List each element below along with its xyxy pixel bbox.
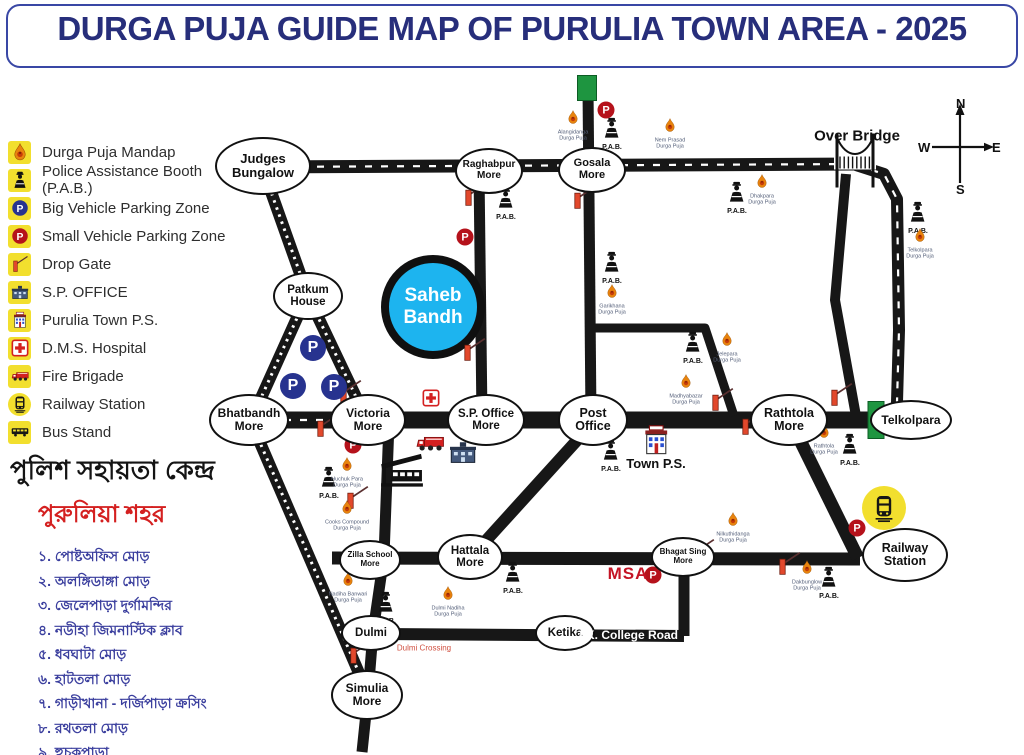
mandap-label-line2: Durga Puja xyxy=(324,483,370,489)
pab-label: P.A.B. xyxy=(503,588,523,595)
drop-gate-icon xyxy=(828,382,854,413)
place-oval-bhatbandh-more: BhatbandhMore xyxy=(209,394,289,446)
mandap-marker: MadhyabazarDurga Puja xyxy=(663,374,709,407)
place-label-line: Office xyxy=(575,420,610,434)
bus-stand-structure-icon xyxy=(379,451,425,489)
mandap-marker: AlangidangaDurga Puja xyxy=(550,110,596,143)
place-label-line: Hattala xyxy=(451,545,489,557)
mandap-icon xyxy=(756,174,768,194)
compass-east: E xyxy=(992,140,1001,155)
mandap-flame-glyph xyxy=(914,228,926,243)
place-oval-patkum-house: PatkumHouse xyxy=(273,272,343,320)
compass-rose: N S E W xyxy=(922,100,998,195)
mandap-icon xyxy=(680,374,692,394)
place-oval-hattala-more: HattalaMore xyxy=(437,534,503,580)
train-glyph xyxy=(872,493,896,523)
mandap-marker: DhakparaDurga Puja xyxy=(739,174,785,207)
place-label-line: More xyxy=(579,170,605,182)
pab-label: P.A.B. xyxy=(683,358,703,365)
saheb-bandh-label-line2: Bandh xyxy=(403,307,462,329)
compass-south: S xyxy=(956,182,965,197)
mandap-marker: GarikhanaDurga Puja xyxy=(589,284,635,317)
mandap-icon xyxy=(606,284,618,304)
mandap-icon xyxy=(664,118,676,138)
mandap-icon xyxy=(567,110,579,130)
place-label-line: More xyxy=(456,557,483,569)
mandap-marker: Dulmi NadihaDurga Puja xyxy=(425,586,471,619)
place-oval-telkolpara: Telkolpara xyxy=(870,400,952,440)
mandap-icon xyxy=(801,560,813,580)
mandap-icon xyxy=(721,332,733,352)
mandap-label-line2: Durga Puja xyxy=(550,136,596,142)
place-oval-rathtola-more: RathtolaMore xyxy=(750,394,828,446)
police-icon xyxy=(377,591,396,618)
road xyxy=(835,174,856,416)
mandap-label-line2: Durga Puja xyxy=(324,526,370,532)
compass-west: W xyxy=(918,140,930,155)
mandap-icon xyxy=(727,512,739,532)
mandap-marker: JeleparaDurga Puja xyxy=(704,332,750,365)
drop-gate-glyph xyxy=(461,337,487,363)
pab-label: P.A.B. xyxy=(601,466,621,473)
fire-truck-icon xyxy=(415,434,445,452)
police-figure-glyph xyxy=(603,251,622,273)
mandap-label-line2: Durga Puja xyxy=(647,144,693,150)
mandap-label-line2: Durga Puja xyxy=(897,254,943,260)
purulia-guide-map: DURGA PUJA GUIDE MAP OF PURULIA TOWN ARE… xyxy=(0,0,1024,755)
police-figure-glyph xyxy=(909,201,928,223)
drop-gate-icon xyxy=(461,337,487,368)
place-label-line: Rathtola xyxy=(764,407,814,421)
place-label-line: More xyxy=(472,420,499,432)
mandap-label-line2: Durga Puja xyxy=(704,358,750,364)
place-label-line: More xyxy=(673,557,692,566)
mandap-flame-glyph xyxy=(341,457,353,472)
police-figure-glyph xyxy=(684,331,703,353)
hospital-icon xyxy=(422,389,440,407)
place-oval-gosala-more: GosalaMore xyxy=(558,147,626,193)
police-icon xyxy=(504,561,523,588)
mandap-label-line2: Durga Puja xyxy=(425,612,471,618)
hospital-cross-glyph xyxy=(422,389,440,407)
place-oval-railway-station: RailwayStation xyxy=(862,528,948,582)
place-oval-victoria-more: VictoriaMore xyxy=(330,394,406,446)
mandap-flame-glyph xyxy=(341,500,353,515)
place-label-line: Railway xyxy=(882,542,929,556)
mandap-flame-glyph xyxy=(680,374,692,389)
mandap-flame-glyph xyxy=(606,284,618,299)
place-label-line: S.P. Office xyxy=(458,408,514,420)
over-bridge-label: Over Bridge xyxy=(814,128,900,145)
roads-svg xyxy=(0,0,1024,755)
place-label-line: More xyxy=(477,171,501,182)
mandap-marker: Nem PrasadDurga Puja xyxy=(647,118,693,151)
place-label-line: More xyxy=(774,420,804,434)
place-label-line: Telkolpara xyxy=(881,414,940,427)
place-oval-zilla-school-more: Zilla SchoolMore xyxy=(339,540,401,580)
mandap-marker: Cooks CompoundDurga Puja xyxy=(324,500,370,533)
drop-gate-glyph xyxy=(709,387,735,413)
place-label-line: House xyxy=(290,296,325,308)
big-parking-icon: P xyxy=(280,373,306,399)
place-oval-sp-office-more: S.P. OfficeMore xyxy=(447,394,525,446)
mandap-marker: Huchuk ParaDurga Puja xyxy=(324,457,370,490)
place-oval-raghabpur-more: RaghabpurMore xyxy=(455,148,523,194)
mandap-marker: TelkolparaDurga Puja xyxy=(897,228,943,261)
dulmi-crossing-label: Dulmi Crossing xyxy=(397,644,451,653)
pab-label: P.A.B. xyxy=(496,214,516,221)
mandap-icon xyxy=(341,457,353,477)
green-drop-gate xyxy=(577,75,597,101)
pab-marker: P.A.B. xyxy=(602,117,622,151)
place-oval-dulmi: Dulmi xyxy=(341,615,401,651)
small-parking-icon: P xyxy=(457,229,474,246)
mandap-label-line2: Durga Puja xyxy=(663,400,709,406)
mandap-label-line2: Durga Puja xyxy=(784,586,830,592)
mandap-icon xyxy=(341,500,353,520)
mandap-label-line2: Durga Puja xyxy=(739,200,785,206)
pab-marker: P.A.B. xyxy=(683,331,703,365)
mandap-label-line2: Durga Puja xyxy=(589,310,635,316)
drop-gate-glyph xyxy=(828,382,854,408)
place-label-line: Patkum xyxy=(287,284,329,296)
compass-north: N xyxy=(956,96,965,111)
place-label-line: Post xyxy=(579,407,606,421)
place-label-line: More xyxy=(360,560,379,569)
police-icon xyxy=(603,251,622,278)
msa-label: MSA xyxy=(608,564,649,584)
police-figure-glyph xyxy=(377,591,396,613)
jk-road-label: J.K. College Road xyxy=(576,628,678,642)
mandap-label-line2: Durga Puja xyxy=(801,450,847,456)
bus-stand-structure-glyph xyxy=(379,451,425,489)
place-oval-post-office: PostOffice xyxy=(558,394,628,446)
place-label-line: More xyxy=(354,420,383,433)
mandap-flame-glyph xyxy=(664,118,676,133)
mandap-marker: NilkuthidangaDurga Puja xyxy=(710,512,756,545)
saheb-bandh-label-line1: Saheb xyxy=(404,285,461,307)
drop-gate-icon xyxy=(709,387,735,418)
mandap-flame-glyph xyxy=(721,332,733,347)
mandap-label-line2: Durga Puja xyxy=(710,538,756,544)
mandap-flame-glyph xyxy=(801,560,813,575)
place-label-line: Station xyxy=(884,555,926,569)
town-ps-building-icon: Town P.S. xyxy=(626,425,685,471)
pab-marker: P.A.B. xyxy=(602,251,622,285)
pab-marker: P.A.B. xyxy=(503,561,523,595)
mandap-marker: DakbunglowDurga Puja xyxy=(784,560,830,593)
mandap-label-line2: Durga Puja xyxy=(325,598,371,604)
town-ps-glyph xyxy=(639,425,673,455)
police-icon xyxy=(603,117,622,144)
place-label-line: Bungalow xyxy=(232,166,294,180)
railway-train-icon xyxy=(862,486,906,530)
compass-cross xyxy=(922,100,998,195)
mandap-flame-glyph xyxy=(727,512,739,527)
place-oval-bhagat-sing-more: Bhagat SingMore xyxy=(651,537,715,577)
pab-label: P.A.B. xyxy=(840,460,860,467)
map-canvas: Saheb Bandh xyxy=(0,0,1024,755)
big-parking-icon: P xyxy=(321,374,347,400)
police-figure-glyph xyxy=(504,561,523,583)
mandap-flame-glyph xyxy=(756,174,768,189)
police-figure-glyph xyxy=(603,117,622,139)
building-label: Town P.S. xyxy=(626,456,685,471)
mandap-flame-glyph xyxy=(567,110,579,125)
pab-label: P.A.B. xyxy=(819,593,839,600)
mandap-icon xyxy=(914,228,926,248)
place-label-line: More xyxy=(235,420,264,433)
place-oval-judges-bungalow: JudgesBungalow xyxy=(215,137,311,195)
mandap-icon xyxy=(442,586,454,606)
small-parking-icon: P xyxy=(598,102,615,119)
police-icon xyxy=(684,331,703,358)
small-parking-icon: P xyxy=(849,520,866,537)
pab-label: P.A.B. xyxy=(727,208,747,215)
big-parking-icon: P xyxy=(300,335,326,361)
place-oval-simulia-more: SimuliaMore xyxy=(331,670,403,720)
fire-truck-glyph xyxy=(415,434,445,452)
place-label-line: Judges xyxy=(240,152,286,166)
place-label-line: More xyxy=(353,695,382,708)
mandap-flame-glyph xyxy=(442,586,454,601)
police-icon xyxy=(909,201,928,228)
place-label-line: Dulmi xyxy=(355,627,387,639)
railway-station-circle xyxy=(862,486,906,530)
roads-layer xyxy=(0,0,1024,755)
